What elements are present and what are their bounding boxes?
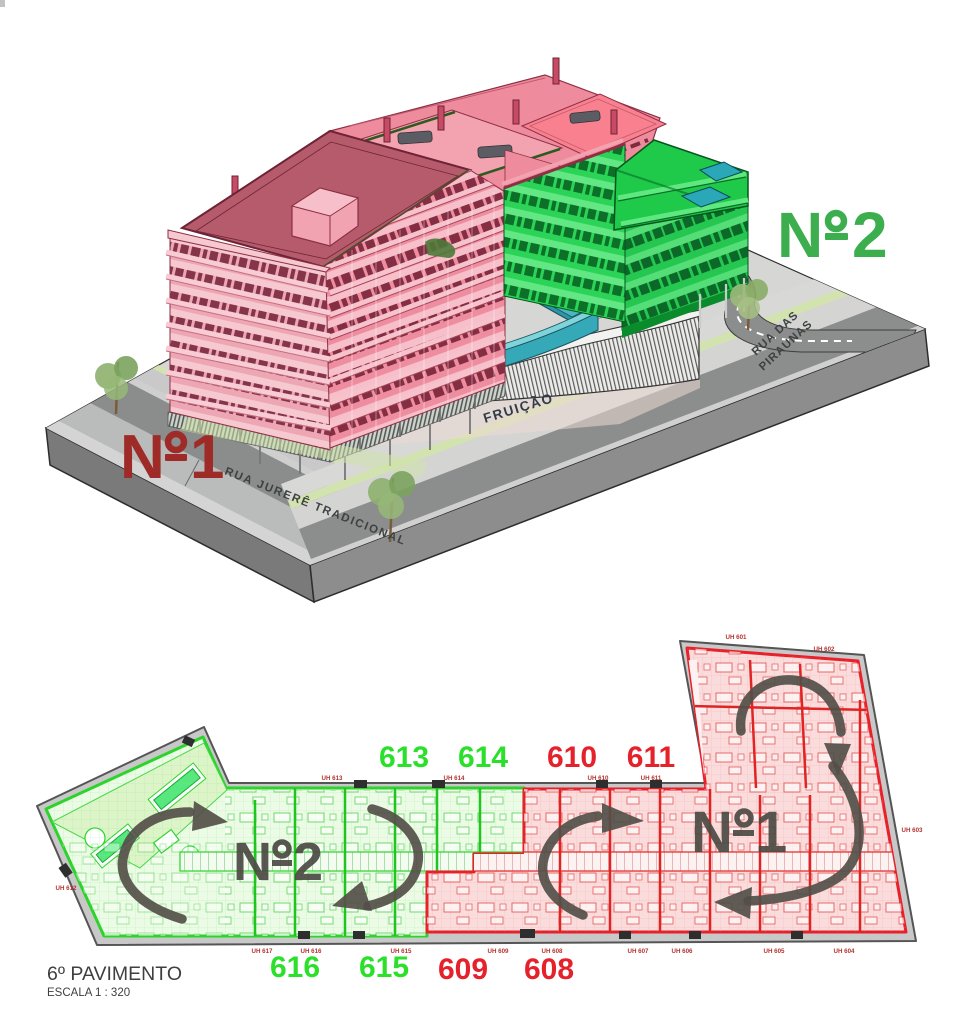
svg-text:613: 613 — [379, 741, 429, 774]
svg-text:6º PAVIMENTO: 6º PAVIMENTO — [47, 963, 182, 985]
svg-text:UH 616: UH 616 — [301, 948, 323, 955]
svg-text:N: N — [233, 832, 272, 892]
svg-text:1: 1 — [755, 800, 787, 865]
svg-text:609: 609 — [438, 953, 488, 986]
svg-text:611: 611 — [627, 741, 675, 774]
svg-text:UH 607: UH 607 — [628, 948, 650, 955]
svg-text:2: 2 — [852, 199, 888, 271]
svg-text:UH 601: UH 601 — [726, 634, 748, 641]
svg-text:UH 615: UH 615 — [391, 948, 413, 955]
svg-text:614: 614 — [458, 741, 508, 774]
svg-text:1: 1 — [190, 423, 224, 492]
svg-text:UH 614: UH 614 — [444, 775, 466, 782]
svg-text:UH 612: UH 612 — [56, 885, 78, 892]
svg-text:N: N — [691, 800, 733, 865]
svg-text:N: N — [777, 199, 823, 271]
svg-text:2: 2 — [293, 832, 323, 892]
svg-text:UH 604: UH 604 — [834, 948, 856, 955]
svg-text:ESCALA 1 : 320: ESCALA 1 : 320 — [47, 987, 130, 999]
svg-text:UH 611: UH 611 — [641, 775, 662, 782]
svg-text:N: N — [120, 423, 165, 492]
svg-text:616: 616 — [270, 951, 320, 984]
svg-text:UH 608: UH 608 — [542, 948, 564, 955]
svg-text:UH 602: UH 602 — [814, 646, 836, 653]
svg-text:UH 605: UH 605 — [764, 948, 786, 955]
svg-text:UH 610: UH 610 — [588, 775, 610, 782]
svg-text:615: 615 — [359, 951, 409, 984]
svg-text:UH 613: UH 613 — [322, 775, 344, 782]
svg-text:UH 617: UH 617 — [252, 948, 274, 955]
svg-text:610: 610 — [547, 741, 597, 774]
svg-text:UH 609: UH 609 — [488, 948, 510, 955]
svg-text:UH 603: UH 603 — [902, 827, 924, 834]
svg-text:608: 608 — [524, 953, 574, 986]
svg-text:UH 606: UH 606 — [672, 948, 694, 955]
